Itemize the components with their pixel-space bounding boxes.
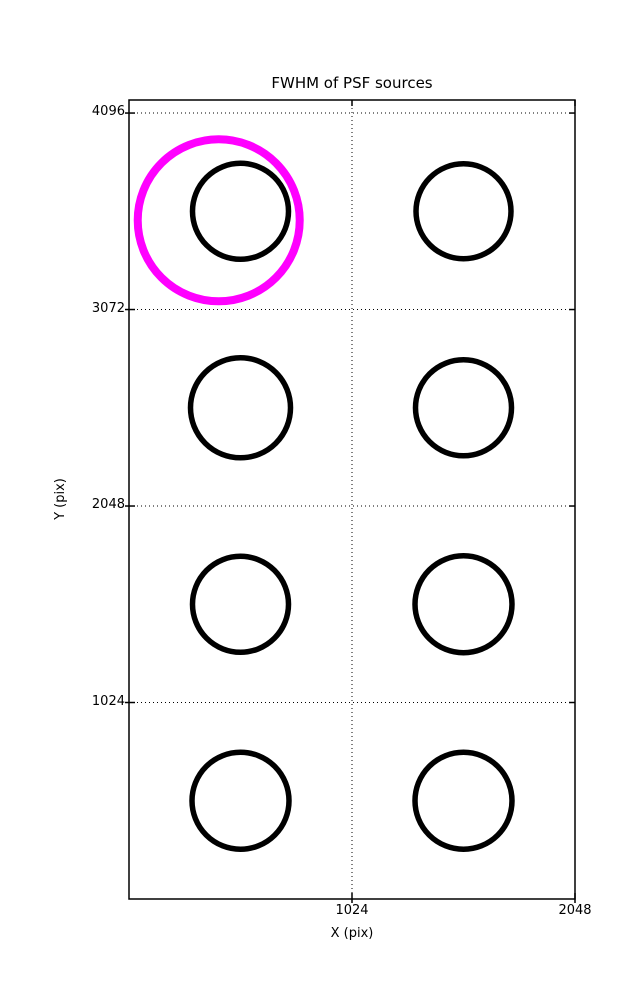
highlighted-source-marker <box>138 139 300 301</box>
psf-source-marker <box>193 163 289 259</box>
psf-source-marker <box>416 360 512 456</box>
psf-source-marker <box>415 556 512 653</box>
psf-source-marker <box>193 556 289 652</box>
y-tick-label: 3072 <box>0 301 125 316</box>
y-tick-label: 4096 <box>0 104 125 119</box>
psf-source-marker <box>416 164 511 259</box>
psf-source-marker <box>192 752 289 849</box>
y-tick-label: 1024 <box>0 694 125 709</box>
x-tick-label: 2048 <box>540 903 610 918</box>
figure-canvas: FWHM of PSF sources Y (pix) X (pix) 1024… <box>0 0 637 1000</box>
psf-source-marker <box>415 752 512 849</box>
psf-source-marker <box>191 358 291 458</box>
y-tick-label: 2048 <box>0 497 125 512</box>
x-tick-label: 1024 <box>317 903 387 918</box>
